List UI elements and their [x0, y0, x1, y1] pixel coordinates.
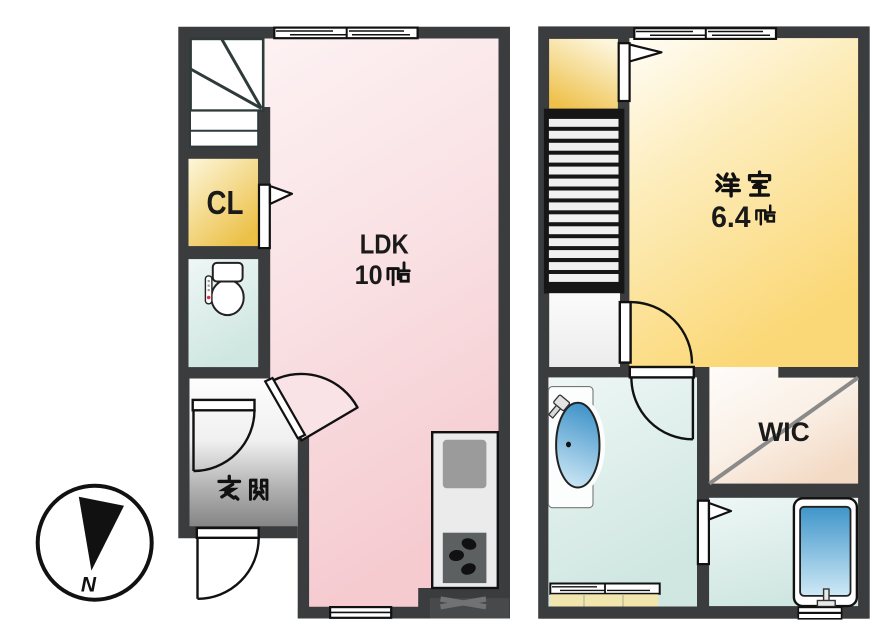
svg-text:WIC: WIC — [758, 417, 810, 447]
svg-text:N: N — [81, 574, 97, 597]
svg-text:CL: CL — [207, 184, 244, 221]
svg-text:LDK: LDK — [360, 229, 409, 260]
svg-text:6.4: 6.4 — [711, 201, 751, 234]
svg-text:10: 10 — [355, 260, 383, 290]
